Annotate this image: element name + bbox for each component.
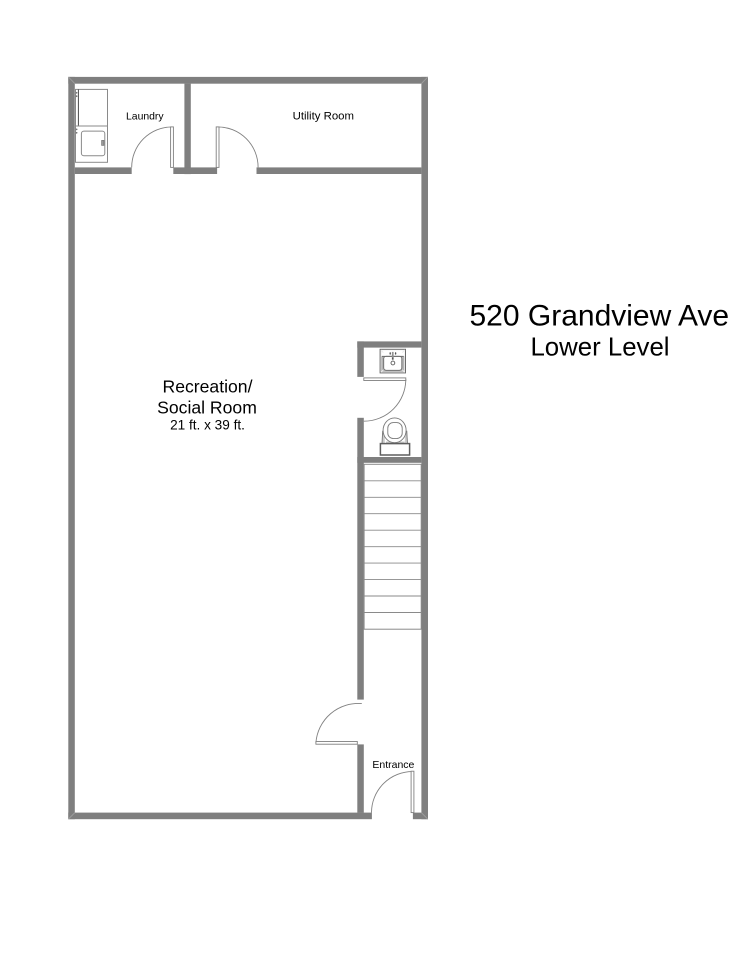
svg-text:520 Grandview Ave: 520 Grandview Ave [469,300,729,333]
svg-text:21 ft. x 39 ft.: 21 ft. x 39 ft. [170,417,245,432]
svg-text:Recreation/: Recreation/ [163,376,253,396]
svg-text:Lower Level: Lower Level [530,334,669,362]
svg-text:Utility Room: Utility Room [293,110,354,122]
svg-text:Laundry: Laundry [126,112,164,123]
svg-text:Social Room: Social Room [157,397,257,417]
svg-text:Entrance: Entrance [372,759,414,771]
